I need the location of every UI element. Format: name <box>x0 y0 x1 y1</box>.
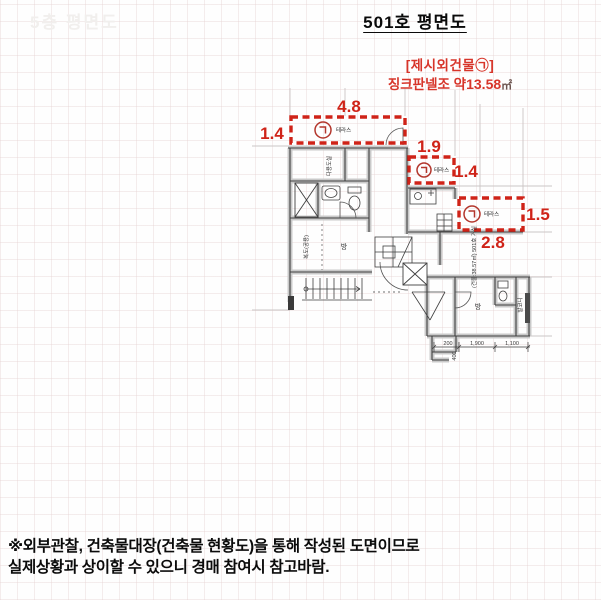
circled-giyeok-icon <box>464 206 480 222</box>
elevator-shaft <box>295 183 318 217</box>
terrace1-depth-dim: 1.4 <box>260 124 284 143</box>
dim-200: 200 <box>443 341 452 347</box>
dim-1900: 1,900 <box>470 341 484 347</box>
spec-material: 징크판넬조 약 <box>388 77 466 92</box>
kitchen-sink-icon <box>415 193 422 200</box>
disclaimer-note: ※외부관찰, 건축물대장(건축물 현황도)을 통해 작성된 도면이므로 실제상황… <box>8 536 593 578</box>
wall-end-cap <box>288 296 294 310</box>
circled-giyeok-icon <box>417 163 431 177</box>
dim-400: 400 <box>452 351 458 360</box>
spec-area-unit: ㎡ <box>501 80 512 92</box>
room-a-label: 방 <box>341 242 348 251</box>
terrace1-width-dim: 4.8 <box>337 97 361 116</box>
sink-icon <box>325 189 337 198</box>
spec-area-value: 13.58 <box>466 76 501 92</box>
disclaimer-line2: 실제상황과 상이할 수 있으니 경매 참여시 참고바람. <box>8 557 593 578</box>
small-bath-fixtures <box>498 281 508 301</box>
balcony-label: 발코니 <box>516 297 524 312</box>
terrace3-depth-dim: 1.5 <box>526 205 550 224</box>
terrace3-width-dim: 2.8 <box>481 233 505 252</box>
terrace2-label: 테라스 <box>434 166 449 174</box>
dim-1100: 1,100 <box>505 341 519 347</box>
extra-building-spec: 징크판넬조 약13.58㎡ <box>380 75 520 95</box>
kitchen-fixtures <box>410 189 452 231</box>
extra-building-label: [제시외건물㉠] <box>380 57 520 75</box>
corridor-label: 복도(공용) <box>303 235 310 259</box>
common-stairs <box>302 278 400 300</box>
page-title: 501호 평면도 <box>330 8 500 33</box>
room-b-label: 방 <box>475 302 482 311</box>
stove-icon <box>437 214 452 231</box>
utility-room-label: 다용도실 <box>325 156 333 176</box>
circled-giyeok-icon <box>315 122 331 138</box>
window-hatch <box>525 293 530 323</box>
terrace1-label: 테라스 <box>336 126 351 134</box>
terrace3-label: 테라스 <box>484 210 499 218</box>
duct-shaft <box>403 263 427 285</box>
faint-watermark-text: 5층 평면도 <box>30 8 119 33</box>
unit-info-label: (건물:38.57㎡) 501호 거실 <box>470 226 478 288</box>
document-page: 5층 평면도 501호 평면도 [제시외건물㉠] 징크판넬조 약13.58㎡ <box>0 0 601 600</box>
toilet-icon <box>349 196 360 210</box>
terrace2-width-dim: 1.9 <box>417 137 441 156</box>
internal-stair <box>375 237 412 267</box>
disclaimer-line1: ※외부관찰, 건축물대장(건축물 현황도)을 통해 작성된 도면이므로 <box>8 536 593 557</box>
extension-lines <box>252 88 552 336</box>
extra-building-note: [제시외건물㉠] 징크판넬조 약13.58㎡ <box>380 57 520 95</box>
bathroom-fixtures <box>322 186 361 210</box>
terrace2-depth-dim: 1.4 <box>454 162 478 181</box>
